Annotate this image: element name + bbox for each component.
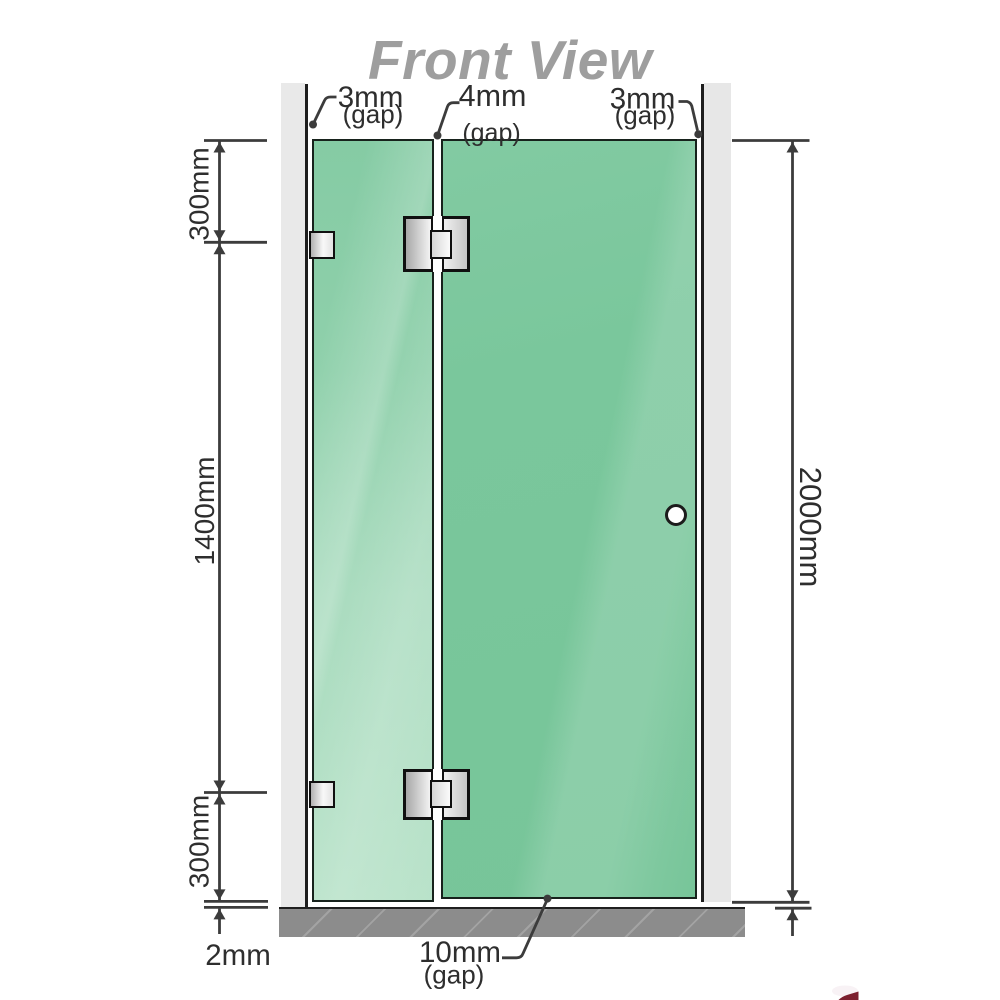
svg-text:4mm: 4mm <box>459 79 527 113</box>
svg-text:1400mm: 1400mm <box>189 457 220 566</box>
svg-text:2000mm: 2000mm <box>793 467 828 588</box>
svg-text:(gap): (gap) <box>462 119 520 147</box>
svg-text:(gap): (gap) <box>615 100 676 130</box>
svg-text:(gap): (gap) <box>424 960 485 990</box>
svg-text:300mm: 300mm <box>184 795 215 888</box>
svg-text:(gap): (gap) <box>343 99 404 129</box>
svg-text:300mm: 300mm <box>184 147 215 240</box>
svg-text:2mm: 2mm <box>205 939 271 972</box>
